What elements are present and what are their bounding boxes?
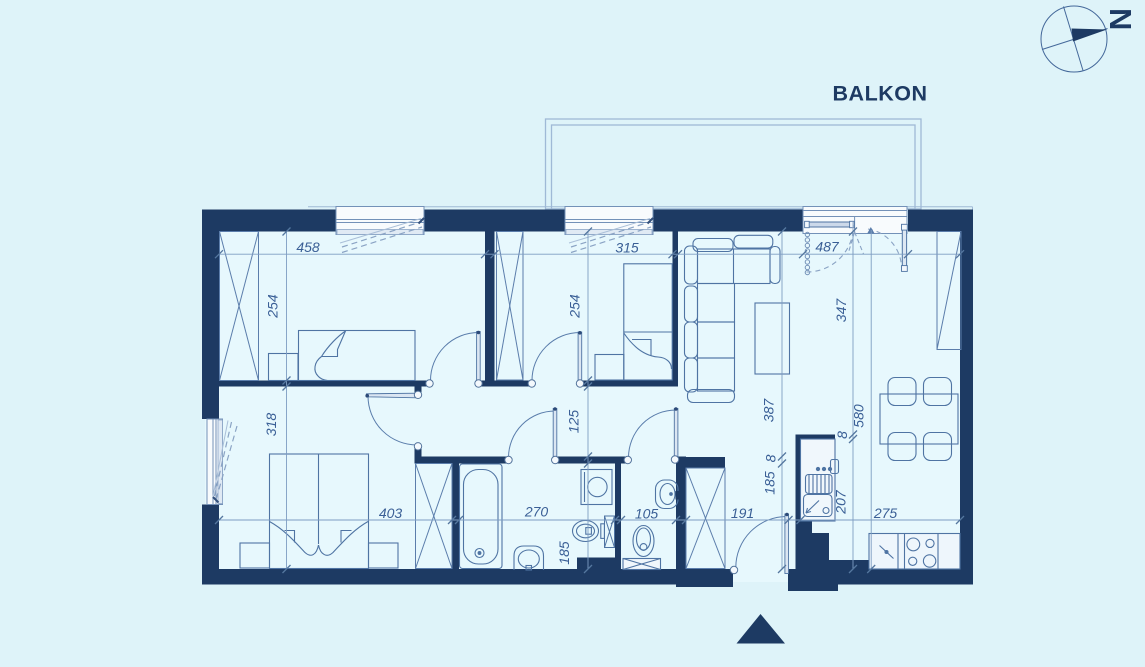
svg-text:387: 387 <box>761 398 777 423</box>
svg-text:347: 347 <box>833 298 849 323</box>
svg-text:185: 185 <box>762 471 778 495</box>
svg-text:270: 270 <box>524 504 549 520</box>
svg-text:275: 275 <box>873 505 898 521</box>
svg-text:185: 185 <box>556 541 572 565</box>
svg-text:254: 254 <box>567 294 583 319</box>
svg-text:318: 318 <box>263 413 279 437</box>
svg-text:458: 458 <box>296 239 320 255</box>
svg-text:207: 207 <box>833 489 849 515</box>
svg-text:105: 105 <box>635 506 659 522</box>
svg-text:BALKON: BALKON <box>833 82 928 106</box>
svg-text:N: N <box>1103 8 1138 30</box>
svg-text:8: 8 <box>834 431 850 439</box>
svg-text:403: 403 <box>379 505 403 521</box>
svg-text:487: 487 <box>815 239 840 255</box>
svg-text:191: 191 <box>731 505 754 521</box>
svg-text:8: 8 <box>763 454 779 462</box>
svg-text:254: 254 <box>265 294 281 319</box>
svg-text:580: 580 <box>851 404 867 428</box>
svg-text:125: 125 <box>566 410 582 434</box>
svg-text:315: 315 <box>615 240 639 256</box>
